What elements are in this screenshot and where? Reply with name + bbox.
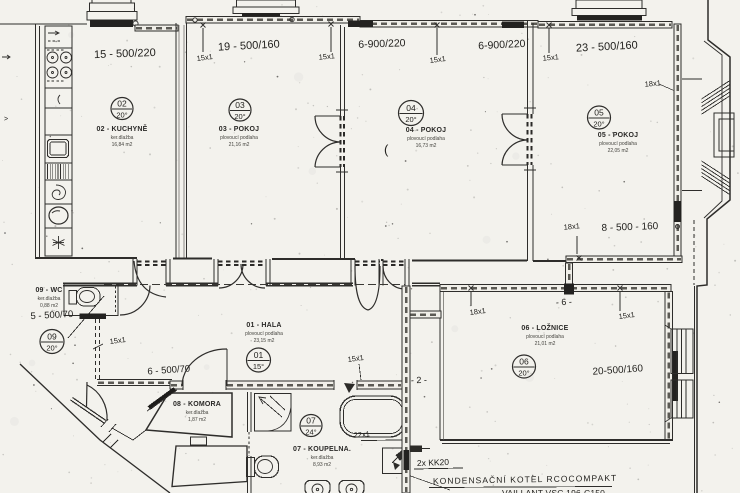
svg-text:20°: 20° bbox=[116, 111, 127, 120]
svg-text:21,16 m2: 21,16 m2 bbox=[229, 142, 250, 148]
svg-text:22x1: 22x1 bbox=[353, 429, 370, 439]
svg-text:plovoucí podlaha: plovoucí podlaha bbox=[407, 136, 445, 142]
svg-text:18x1: 18x1 bbox=[563, 221, 580, 231]
svg-text:(: ( bbox=[384, 142, 389, 157]
svg-text:09: 09 bbox=[47, 332, 57, 342]
svg-text:21,01 m2: 21,01 m2 bbox=[535, 341, 556, 347]
svg-text:05 - POKOJ: 05 - POKOJ bbox=[598, 132, 639, 139]
svg-text:08 - KOMORA: 08 - KOMORA bbox=[173, 401, 221, 408]
svg-text:24°: 24° bbox=[305, 428, 316, 437]
svg-text:8 - 500 - 160: 8 - 500 - 160 bbox=[601, 221, 658, 234]
svg-text:04: 04 bbox=[406, 103, 416, 113]
svg-text:09 - WC: 09 - WC bbox=[35, 287, 62, 294]
svg-text:01 - HALA: 01 - HALA bbox=[246, 322, 281, 329]
svg-text:ker.dlažba: ker.dlažba bbox=[111, 135, 134, 141]
svg-text:15x1: 15x1 bbox=[542, 52, 559, 62]
svg-text:01: 01 bbox=[254, 350, 264, 360]
svg-text:04 - POKOJ: 04 - POKOJ bbox=[406, 127, 447, 134]
svg-text:plovoucí podlaha: plovoucí podlaha bbox=[220, 135, 258, 141]
svg-text:- 2 -: - 2 - bbox=[411, 375, 427, 386]
svg-text:16,73 m2: 16,73 m2 bbox=[416, 143, 437, 149]
svg-text:07 - KOUPELNA.: 07 - KOUPELNA. bbox=[293, 446, 351, 453]
svg-text:02: 02 bbox=[117, 99, 127, 109]
svg-text:8,93 m2: 8,93 m2 bbox=[313, 462, 331, 468]
svg-text:1,87 m2: 1,87 m2 bbox=[188, 417, 206, 423]
svg-text:15 - 500/220: 15 - 500/220 bbox=[94, 47, 156, 61]
svg-text:20°: 20° bbox=[405, 115, 416, 124]
svg-text:0,88 m2: 0,88 m2 bbox=[40, 303, 58, 309]
svg-text:2x KK20: 2x KK20 bbox=[417, 457, 450, 468]
svg-text:06: 06 bbox=[519, 357, 529, 367]
svg-text:03 - POKOJ: 03 - POKOJ bbox=[219, 126, 260, 133]
svg-text:plovoucí podlaha: plovoucí podlaha bbox=[245, 331, 283, 337]
svg-text:plovoucí podlaha: plovoucí podlaha bbox=[526, 334, 564, 340]
svg-text:05: 05 bbox=[594, 108, 604, 118]
svg-text:plovoucí podlaha: plovoucí podlaha bbox=[599, 141, 637, 147]
svg-text:06 - LOŽNICE: 06 - LOŽNICE bbox=[521, 323, 568, 332]
svg-text:- 6 -: - 6 - bbox=[556, 297, 573, 308]
svg-text:6-900/220: 6-900/220 bbox=[358, 37, 406, 51]
svg-text:07: 07 bbox=[306, 416, 316, 426]
svg-text:20°: 20° bbox=[518, 369, 529, 378]
svg-text:ker.dlažba: ker.dlažba bbox=[311, 455, 334, 461]
svg-text:23,15 m2: 23,15 m2 bbox=[254, 338, 275, 344]
svg-text:15°: 15° bbox=[253, 362, 264, 371]
svg-text:6-900/220: 6-900/220 bbox=[478, 38, 526, 52]
svg-text:ker.dlažba: ker.dlažba bbox=[186, 410, 209, 416]
svg-text:16,84 m2: 16,84 m2 bbox=[112, 142, 133, 148]
svg-text:>: > bbox=[4, 116, 8, 123]
svg-text:20°: 20° bbox=[234, 112, 245, 121]
svg-text:ker.dlažba: ker.dlažba bbox=[38, 296, 61, 302]
svg-text:22,05 m2: 22,05 m2 bbox=[608, 148, 629, 154]
svg-text:02 - KUCHYNĚ: 02 - KUCHYNĚ bbox=[96, 124, 147, 133]
svg-text:VAILLANT VSC 196-C150: VAILLANT VSC 196-C150 bbox=[502, 488, 605, 493]
svg-text:5 - 500/70: 5 - 500/70 bbox=[30, 309, 73, 322]
svg-text:15x1: 15x1 bbox=[318, 51, 335, 61]
svg-text:20°: 20° bbox=[593, 120, 604, 129]
svg-text:03: 03 bbox=[235, 100, 245, 110]
svg-text:20°: 20° bbox=[46, 344, 57, 353]
svg-text:18x1: 18x1 bbox=[644, 78, 661, 88]
